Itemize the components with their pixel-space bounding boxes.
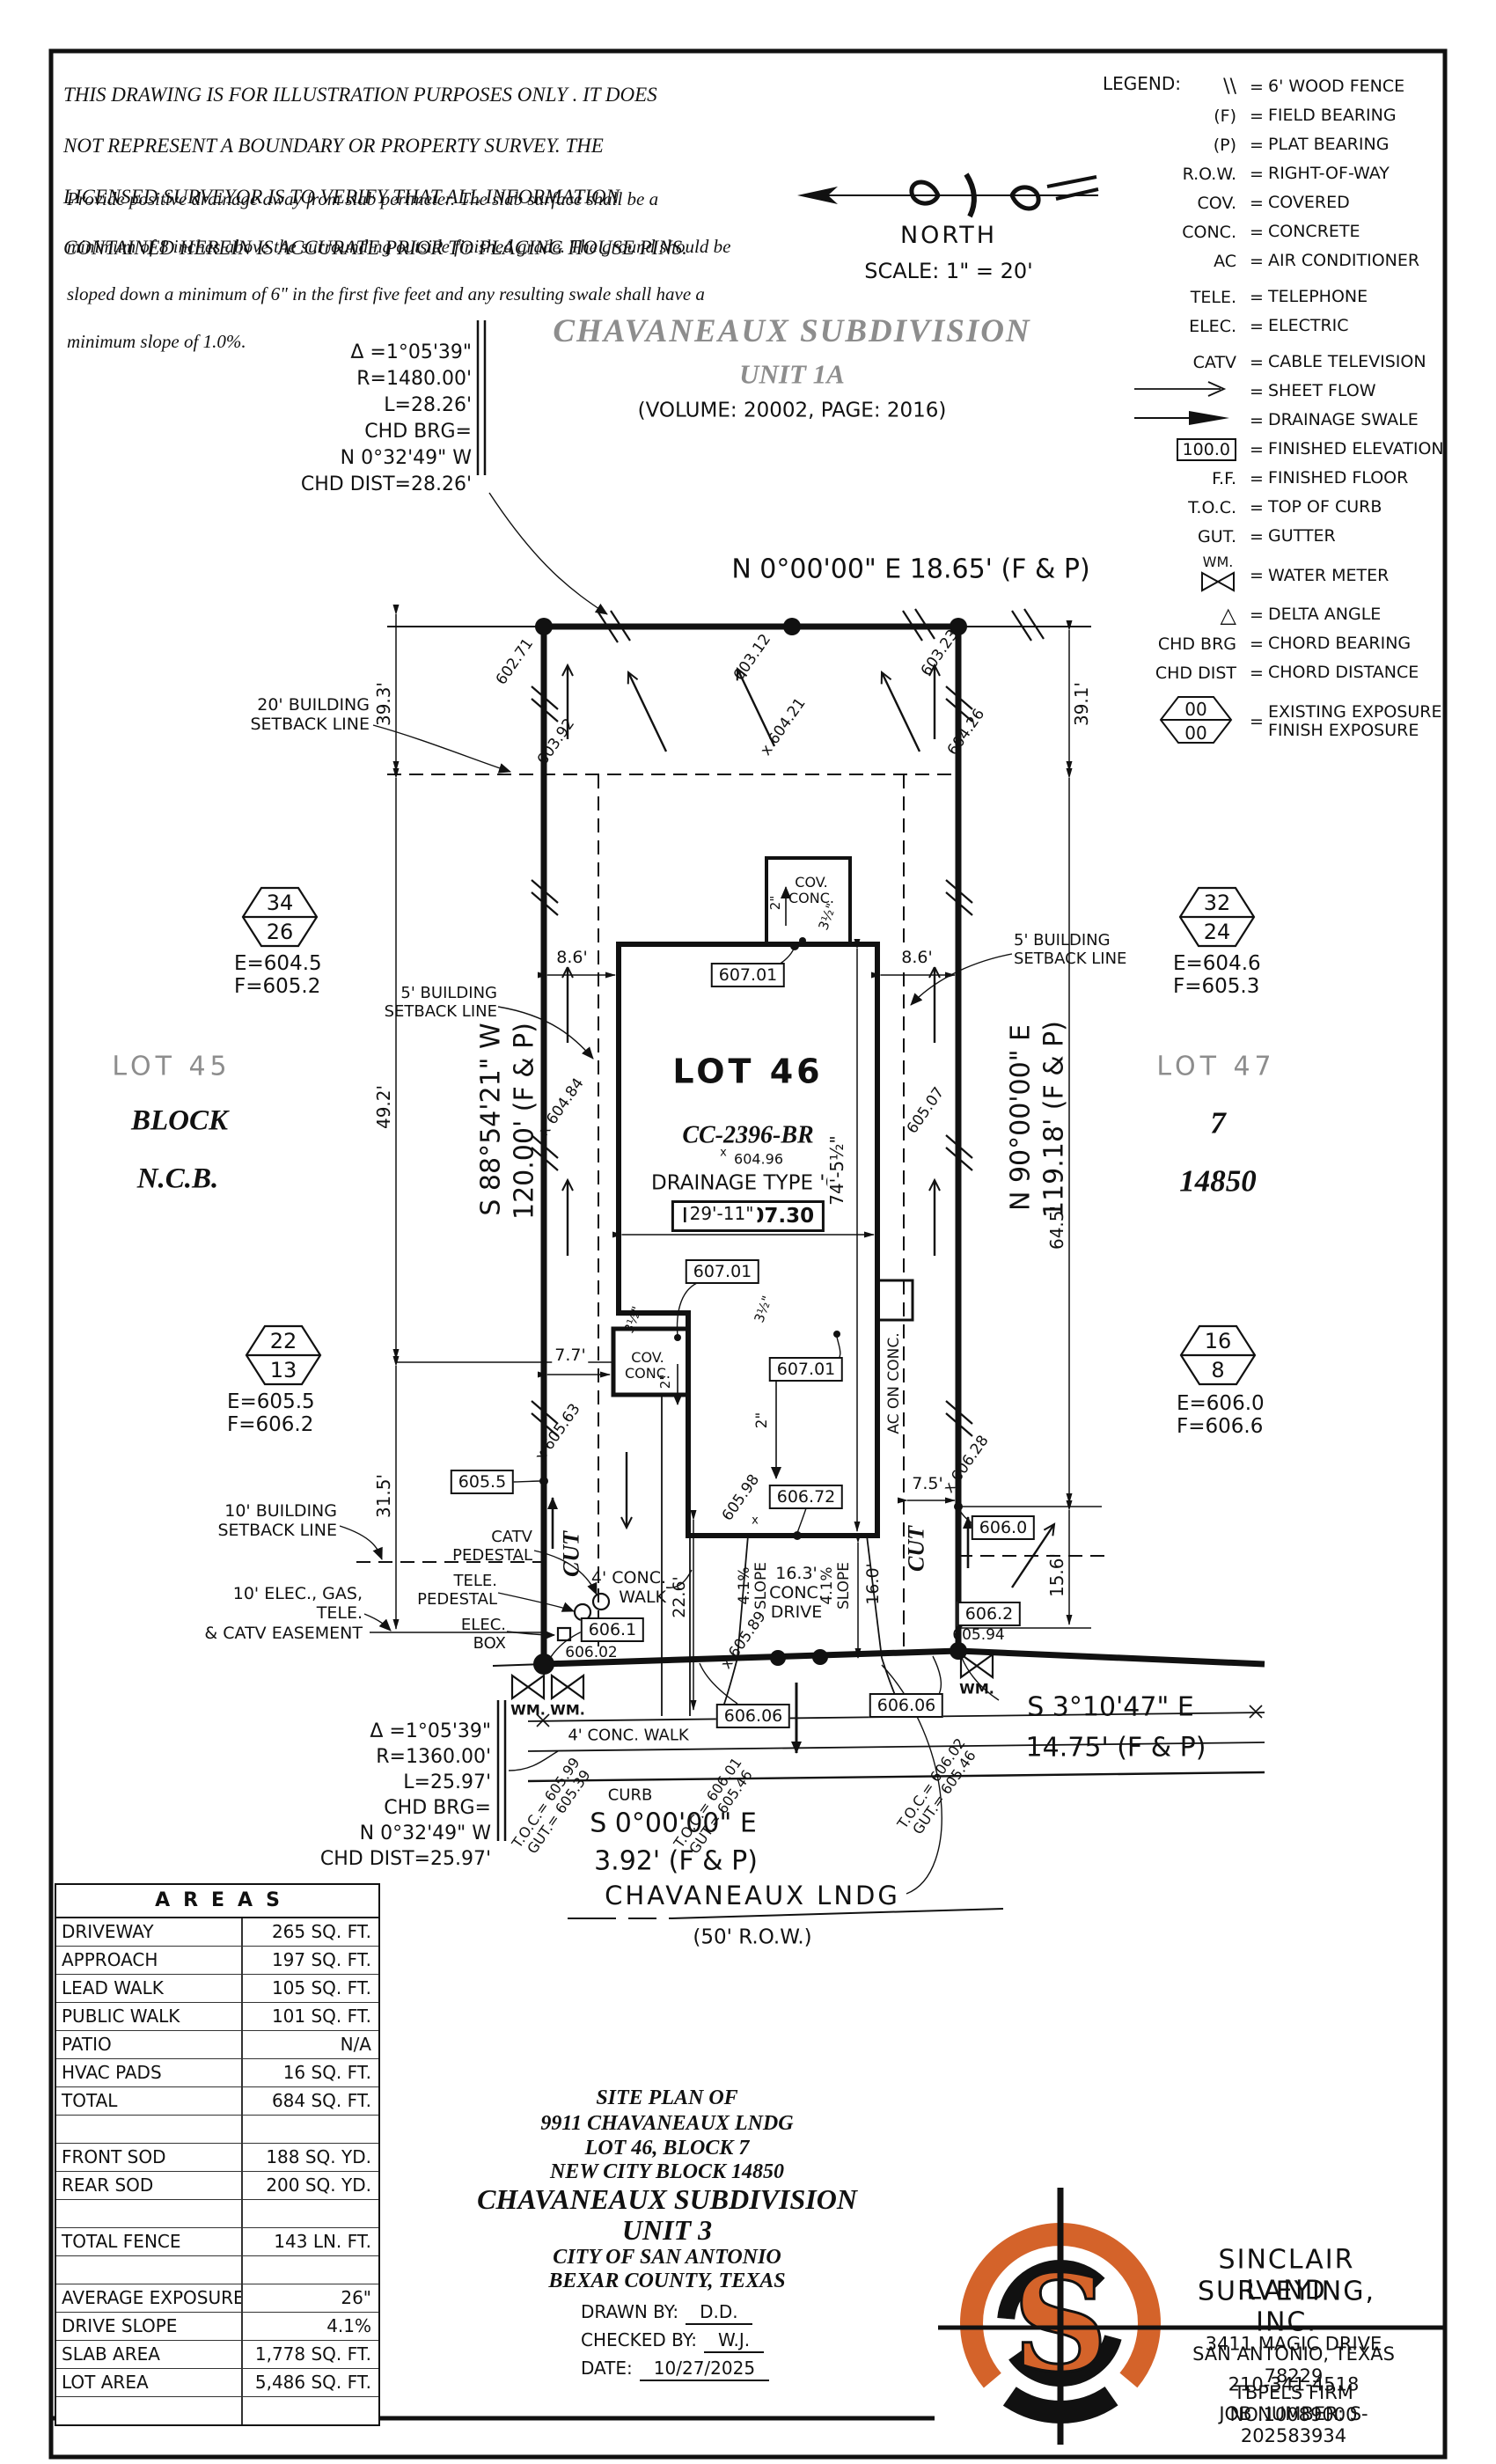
legend-row: T.O.C.=TOP OF CURB — [1103, 493, 1455, 522]
row-value: 143 LN. FT. — [243, 2228, 378, 2255]
row-value — [243, 2256, 378, 2284]
legend-text: PLAT BEARING — [1268, 136, 1389, 154]
catv-pedestal-label: CATV PEDESTAL — [444, 1528, 532, 1565]
legend-text: CABLE TELEVISION — [1268, 353, 1426, 371]
disclaimer-line: Provide positive drainage away from slab… — [67, 187, 730, 211]
elev-box-605-5: 605.5 — [451, 1470, 514, 1494]
water-meter-icon: WM. — [1103, 554, 1245, 598]
legend-row-delta: △=DELTA ANGLE — [1103, 600, 1455, 629]
row-label: DRIVEWAY — [56, 1918, 243, 1946]
titleblock-unit: UNIT 3 — [622, 2214, 712, 2248]
table-row: REAR SOD200 SQ. YD. — [56, 2172, 378, 2200]
curve-line: N 0°32'49" W — [299, 1821, 491, 1846]
hex2-finish: 24 — [1204, 920, 1231, 944]
hex1-existing: 34 — [267, 891, 294, 915]
ncb-label-left: N.C.B. — [137, 1162, 219, 1197]
dim-7-7: 7.7' — [552, 1346, 588, 1365]
row-value: 16 SQ. FT. — [243, 2059, 378, 2086]
curve-line: N 0°32'49" W — [299, 445, 472, 472]
spot-605-94: 605.94 — [952, 1626, 1004, 1644]
row-label — [56, 2116, 243, 2143]
legend-row-exposure: 0000=EXISTING EXPOSURE FINISH EXPOSURE — [1103, 687, 1455, 756]
bearing-west: S 88°54'21" W — [475, 1023, 506, 1215]
scale-label: SCALE: 1" = 20' — [864, 259, 1032, 283]
legend-row: (P)=PLAT BEARING — [1103, 130, 1455, 159]
equals: = — [1245, 527, 1268, 546]
elev-box-606-0: 606.0 — [972, 1515, 1035, 1540]
legend-text: 6' WOOD FENCE — [1268, 77, 1404, 96]
inch-2-rear: 2" — [768, 896, 784, 910]
legend-text: AIR CONDITIONER — [1268, 252, 1419, 270]
row-label: FRONT SOD — [56, 2144, 243, 2171]
row-value — [243, 2116, 378, 2143]
hex4-f: F=606.6 — [1177, 1415, 1263, 1439]
hex3-e: E=605.5 — [227, 1390, 315, 1414]
titleblock-county: BEXAR COUNTY, TEXAS — [548, 2269, 785, 2293]
row-label: DRIVE SLOPE — [56, 2313, 243, 2340]
row-value: 101 SQ. FT. — [243, 2003, 378, 2030]
legend-row: CHD DIST=CHORD DISTANCE — [1103, 658, 1455, 687]
sheet-flow-icon — [1103, 379, 1245, 403]
table-row: DRIVEWAY265 SQ. FT. — [56, 1918, 378, 1947]
curve-line: CHD BRG= — [299, 1795, 491, 1821]
legend-text: ELECTRIC — [1268, 317, 1349, 335]
table-row: PUBLIC WALK101 SQ. FT. — [56, 2003, 378, 2031]
ff-symbol: F.F. — [1103, 469, 1245, 488]
row-value: 684 SQ. FT. — [243, 2087, 378, 2115]
row-label — [56, 2397, 243, 2424]
site-plan-page: S THIS DRAWING IS FOR ILLUSTRATION PURPO… — [0, 0, 1496, 2464]
curve-line: Δ =1°05'39" — [299, 1719, 491, 1744]
table-row: LEAD WALK105 SQ. FT. — [56, 1975, 378, 2003]
elev-box-606-2: 606.2 — [957, 1602, 1021, 1626]
dim-29-11: 29'-11" — [686, 1204, 758, 1225]
equals: = — [1245, 498, 1268, 517]
equals: = — [1245, 288, 1268, 307]
legend-row: TELE.=TELEPHONE — [1103, 282, 1455, 312]
legend-row: COV.=COVERED — [1103, 188, 1455, 217]
bearing-north: N 0°00'00" E 18.65' (F & P) — [731, 554, 1089, 584]
disclaimer-line: minimum of 8 inches above the surroundin… — [67, 235, 730, 259]
table-row: TOTAL FENCE143 LN. FT. — [56, 2228, 378, 2256]
curve-data-south: Δ =1°05'39"R=1360.00'L=25.97'CHD BRG=N 0… — [299, 1693, 491, 1897]
row-label: SLAB AREA — [56, 2341, 243, 2368]
row-label: TOTAL — [56, 2087, 243, 2115]
concrete-symbol: CONC. — [1103, 223, 1245, 242]
cut-label-left: CUT — [559, 1531, 586, 1577]
table-row-blank — [56, 2116, 378, 2144]
legend-row: CONC.=CONCRETE — [1103, 217, 1455, 246]
table-row-blank — [56, 2256, 378, 2284]
legend-row: F.F.=FINISHED FLOOR — [1103, 464, 1455, 493]
equals: = — [1245, 317, 1268, 336]
legend-text: EXISTING EXPOSURE FINISH EXPOSURE — [1268, 703, 1441, 740]
curve-data-north: Δ =1°05'39"R=1480.00'L=28.26'CHD BRG=N 0… — [299, 313, 472, 524]
row-label: PUBLIC WALK — [56, 2003, 243, 2030]
table-row: SLAB AREA1,778 SQ. FT. — [56, 2341, 378, 2369]
covered-symbol: COV. — [1103, 194, 1245, 213]
table-row: HVAC PADS16 SQ. FT. — [56, 2059, 378, 2087]
equals: = — [1245, 106, 1268, 126]
hex4-e: E=606.0 — [1177, 1392, 1265, 1416]
elev-box-606-72: 606.72 — [769, 1485, 843, 1509]
legend-text: SHEET FLOW — [1268, 382, 1376, 400]
chd-dist-symbol: CHD DIST — [1103, 664, 1245, 683]
table-row: TOTAL684 SQ. FT. — [56, 2087, 378, 2116]
curve-line: CHD DIST=25.97' — [299, 1846, 491, 1872]
dim-16-0: 16.0' — [863, 1563, 883, 1605]
drainage-swale-icon — [1103, 408, 1245, 432]
legend-row: CHD BRG=CHORD BEARING — [1103, 629, 1455, 658]
hex4-existing: 16 — [1205, 1329, 1232, 1353]
table-row: LOT AREA5,486 SQ. FT. — [56, 2369, 378, 2397]
equals: = — [1245, 223, 1268, 242]
legend-row-drainage-swale: =DRAINAGE SWALE — [1103, 406, 1455, 435]
equals: = — [1245, 469, 1268, 488]
ac-on-conc-label: AC ON CONC. — [885, 1332, 903, 1434]
elev-box-606-06-left: 606.06 — [716, 1704, 790, 1728]
leader-dots — [539, 937, 963, 1540]
delta-angle-icon: △ — [1103, 603, 1245, 627]
table-row-blank — [56, 2397, 378, 2424]
equals: = — [1245, 136, 1268, 155]
legend-row: (F)=FIELD BEARING — [1103, 101, 1455, 130]
legend-text: CHORD BEARING — [1268, 634, 1411, 653]
street-row-width: (50' R.O.W.) — [693, 1925, 811, 1949]
equals: = — [1245, 77, 1268, 97]
legend-text: COVERED — [1268, 194, 1350, 212]
curve-line: CHD BRG= — [299, 419, 472, 445]
row-value: 4.1% — [243, 2313, 378, 2340]
titleblock-line: NEW CITY BLOCK 14850 — [550, 2160, 784, 2184]
areas-title: AREAS — [56, 1885, 378, 1918]
dim-39-3: 39.3' — [374, 682, 395, 726]
titleblock-subdivision: CHAVANEAUX SUBDIVISION — [477, 2183, 857, 2217]
elec-box-label: ELEC. BOX — [418, 1616, 506, 1653]
hex2-f: F=605.3 — [1173, 975, 1259, 999]
dim-64-5: 64.5' — [1047, 1206, 1068, 1250]
drive-label: 16.3' CONC. DRIVE — [769, 1564, 824, 1622]
legend-text: CHORD DISTANCE — [1268, 664, 1419, 682]
bearing-southeast-distance: 14.75' (F & P) — [1026, 1732, 1206, 1763]
setback-20-label: 20' BUILDING SETBACK LINE — [211, 695, 370, 735]
equals: = — [1245, 440, 1268, 459]
elevation-box: 100.0 — [1177, 438, 1236, 461]
legend: LEGEND: \\=6' WOOD FENCE (F)=FIELD BEARI… — [1103, 72, 1455, 756]
elev-box-607-01-rear: 607.01 — [711, 963, 785, 987]
gutter-symbol: GUT. — [1103, 527, 1245, 546]
plat-bearing-symbol: (P) — [1103, 136, 1245, 155]
row-value: 1,778 SQ. FT. — [243, 2341, 378, 2368]
row-value: 200 SQ. YD. — [243, 2172, 378, 2199]
row-label: LOT AREA — [56, 2369, 243, 2396]
north-arrow-icon — [797, 174, 1098, 216]
curve-line: CHD DIST=28.26' — [299, 472, 472, 498]
row-value — [243, 2397, 378, 2424]
spot-606-02: 606.02 — [565, 1644, 617, 1661]
wm-label-2: WM. — [550, 1703, 585, 1720]
row-value: N/A — [243, 2031, 378, 2058]
spot-604-96: 604.96 — [734, 1152, 783, 1169]
hex4-finish: 8 — [1211, 1358, 1224, 1382]
hex1-f: F=605.2 — [234, 975, 320, 999]
elev-box-607-01-mid: 607.01 — [686, 1259, 759, 1284]
svg-text:00: 00 — [1184, 722, 1206, 744]
lot-45-label: LOT 45 — [112, 1051, 231, 1082]
drainage-type: DRAINAGE TYPE 'C' — [651, 1171, 845, 1195]
table-row-blank — [56, 2200, 378, 2228]
checked-by-row: CHECKED BY:W.J. — [581, 2330, 764, 2353]
wm-label-3: WM. — [959, 1682, 994, 1698]
drawn-by-value: D.D. — [686, 2302, 752, 2325]
drawn-by-label: DRAWN BY: — [581, 2301, 678, 2322]
curve-line: L=25.97' — [299, 1770, 491, 1795]
table-row: FRONT SOD188 SQ. YD. — [56, 2144, 378, 2172]
row-label: APPROACH — [56, 1947, 243, 1974]
elev-box-607-01-front: 607.01 — [769, 1357, 843, 1382]
plan-number: CC-2396-BR — [682, 1120, 813, 1149]
legend-text: FIELD BEARING — [1268, 106, 1397, 125]
bearing-south: S 0°00'00" E — [590, 1808, 757, 1838]
curve-line: Δ =1°05'39" — [299, 340, 472, 366]
cut-label-right: CUT — [904, 1526, 931, 1572]
lot-46-label: LOT 46 — [672, 1052, 823, 1092]
legend-text: DELTA ANGLE — [1268, 605, 1381, 624]
legend-row: CATV=CABLE TELEVISION — [1103, 348, 1455, 377]
wm-label-1: WM. — [510, 1703, 546, 1720]
row-value: 105 SQ. FT. — [243, 1975, 378, 2002]
equals: = — [1245, 634, 1268, 654]
equals: = — [1245, 353, 1268, 372]
adjacent-subdivision-unit: UNIT 1A — [739, 359, 845, 392]
dim-8-6-left: 8.6' — [553, 948, 590, 967]
lot-47-label: LOT 47 — [1156, 1051, 1275, 1082]
equals: = — [1245, 605, 1268, 625]
date-label: DATE: — [581, 2358, 633, 2379]
row-value: 26" — [243, 2284, 378, 2312]
chd-brg-symbol: CHD BRG — [1103, 634, 1245, 654]
easement-label: 10' ELEC., GAS, TELE. & CATV EASEMENT — [190, 1584, 363, 1643]
hex2-existing: 32 — [1204, 891, 1231, 915]
bearing-south-distance: 3.92' (F & P) — [594, 1845, 758, 1876]
titleblock-city: CITY OF SAN ANTONIO — [553, 2245, 781, 2270]
row-value: 188 SQ. YD. — [243, 2144, 378, 2171]
table-row: APPROACH197 SQ. FT. — [56, 1947, 378, 1975]
legend-text: FINISHED FLOOR — [1268, 469, 1408, 488]
setback-5-left-label: 5' BUILDING SETBACK LINE — [376, 984, 497, 1021]
legend-text: CONCRETE — [1268, 223, 1360, 241]
inch-2-porch: 2" — [658, 1375, 674, 1389]
hex1-finish: 26 — [267, 920, 294, 944]
adjacent-subdivision-title: CHAVANEAUX SUBDIVISION — [553, 312, 1030, 351]
row-label: LEAD WALK — [56, 1975, 243, 2002]
ac-symbol: AC — [1103, 252, 1245, 271]
legend-row: R.O.W.=RIGHT-OF-WAY — [1103, 159, 1455, 188]
adjacent-subdivision-volume: (VOLUME: 20002, PAGE: 2016) — [638, 399, 947, 422]
legend-text: GUTTER — [1268, 527, 1336, 546]
row-label — [56, 2256, 243, 2284]
disclaimer-line: NOT REPRESENT A BOUNDARY OR PROPERTY SUR… — [63, 133, 687, 158]
equals: = — [1245, 566, 1268, 585]
block-label-left: BLOCK — [131, 1104, 228, 1139]
wm-label: WM. — [1199, 554, 1236, 570]
row-label: REAR SOD — [56, 2172, 243, 2199]
row-value: 265 SQ. FT. — [243, 1918, 378, 1946]
legend-text: FINISHED ELEVATION — [1268, 440, 1444, 458]
date-row: DATE:10/27/2025 — [581, 2358, 769, 2381]
street-name: CHAVANEAUX LNDG — [605, 1881, 900, 1910]
equals: = — [1245, 411, 1268, 430]
row-label: TOTAL FENCE — [56, 2228, 243, 2255]
legend-title: LEGEND: — [1103, 74, 1181, 95]
legend-row: ELEC.=ELECTRIC — [1103, 312, 1455, 341]
table-row: AVERAGE EXPOSURE26" — [56, 2284, 378, 2313]
drawn-by-row: DRAWN BY:D.D. — [581, 2302, 752, 2325]
row-value: 197 SQ. FT. — [243, 1947, 378, 1974]
checked-by-value: W.J. — [704, 2330, 764, 2353]
bearing-east: N 90°00'00" E — [1005, 1024, 1036, 1211]
telephone-symbol: TELE. — [1103, 288, 1245, 307]
legend-text: RIGHT-OF-WAY — [1268, 165, 1390, 183]
dim-22-6: 22.6' — [670, 1576, 689, 1618]
curve-line: R=1480.00' — [299, 366, 472, 392]
equals: = — [1245, 712, 1268, 731]
equals: = — [1245, 194, 1268, 213]
public-walk-label: 4' CONC. WALK — [563, 1726, 693, 1744]
dim-49-2: 49.2' — [374, 1085, 395, 1129]
bearing-west-distance: 120.00' (F & P) — [509, 1023, 539, 1220]
hex3-f: F=606.2 — [227, 1413, 313, 1437]
hex1-e: E=604.5 — [234, 952, 322, 976]
house-outline — [613, 858, 913, 1536]
titleblock-line: LOT 46, BLOCK 7 — [585, 2136, 750, 2160]
surveyor-name-2: SURVEYING, INC. — [1182, 2277, 1391, 2339]
field-bearing-symbol: (F) — [1103, 106, 1245, 126]
svg-text:00: 00 — [1184, 699, 1206, 720]
lead-walk-label: 4' CONC. WALK — [578, 1568, 666, 1608]
date-value: 10/27/2025 — [640, 2358, 769, 2381]
row-value — [243, 2200, 378, 2227]
row-label: HVAC PADS — [56, 2059, 243, 2086]
block-number-right: 7 — [1210, 1104, 1226, 1140]
tele-pedestal-label: TELE. PEDESTAL — [400, 1572, 497, 1609]
inch-2-front: 2" — [753, 1412, 771, 1429]
wood-fence-icon: \\ — [1173, 76, 1245, 98]
table-row: PATION/A — [56, 2031, 378, 2059]
table-row: DRIVE SLOPE4.1% — [56, 2313, 378, 2341]
equals: = — [1245, 252, 1268, 271]
elev-box-606-06-right: 606.06 — [869, 1693, 943, 1718]
bearing-east-distance: 119.18' (F & P) — [1038, 1021, 1069, 1218]
legend-row: GUT.=GUTTER — [1103, 522, 1455, 551]
north-label: NORTH — [900, 222, 997, 250]
curb-label: CURB — [608, 1786, 653, 1804]
titleblock-line: SITE PLAN OF — [596, 2086, 737, 2110]
bearing-southeast: S 3°10'47" E — [1027, 1691, 1194, 1722]
toc-symbol: T.O.C. — [1103, 498, 1245, 517]
x-mark: x — [720, 1146, 727, 1159]
legend-row: AC=AIR CONDITIONER — [1103, 246, 1455, 275]
dim-15-6: 15.6' — [1047, 1553, 1068, 1597]
slope-left-label: 4.1% SLOPE — [737, 1562, 770, 1610]
row-label — [56, 2200, 243, 2227]
legend-row-sheet-flow: =SHEET FLOW — [1103, 377, 1455, 406]
legend-text: WATER METER — [1268, 567, 1389, 585]
equals: = — [1245, 165, 1268, 184]
ncb-number-right: 14850 — [1179, 1162, 1257, 1199]
equals: = — [1245, 382, 1268, 401]
catv-symbol: CATV — [1103, 353, 1245, 372]
row-symbol: R.O.W. — [1103, 165, 1245, 184]
disclaimer-line: sloped down a minimum of 6" in the first… — [67, 282, 730, 306]
row-value: 5,486 SQ. FT. — [243, 2369, 378, 2396]
setback-10-label: 10' BUILDING SETBACK LINE — [201, 1501, 337, 1541]
surveyor-job-number: JOB NUMBER: S-202583934 — [1192, 2403, 1395, 2447]
dim-39-1: 39.1' — [1072, 682, 1093, 726]
slope-right-label: 4.1% SLOPE — [819, 1562, 853, 1610]
x-mark-605-98: x — [752, 1514, 759, 1527]
disclaimer-line: THIS DRAWING IS FOR ILLUSTRATION PURPOSE… — [63, 82, 687, 107]
exposure-hexagon-icon: 0000 — [1103, 692, 1245, 752]
hex3-finish: 13 — [270, 1358, 297, 1382]
dim-31-5: 31.5' — [374, 1474, 395, 1518]
curve-line: R=1360.00' — [299, 1744, 491, 1770]
row-label: PATIO — [56, 2031, 243, 2058]
titleblock-line: 9911 CHAVANEAUX LNDG — [540, 2111, 793, 2136]
legend-row-water-meter: WM.=WATER METER — [1103, 551, 1455, 600]
areas-table: AREAS DRIVEWAY265 SQ. FT. APPROACH197 SQ… — [55, 1883, 380, 2426]
legend-text: TELEPHONE — [1268, 288, 1368, 306]
legend-row-finished-elev: 100.0=FINISHED ELEVATION — [1103, 435, 1455, 464]
legend-text: DRAINAGE SWALE — [1268, 411, 1419, 429]
hex3-existing: 22 — [270, 1329, 297, 1353]
dim-8-6-right: 8.6' — [898, 948, 935, 967]
setback-5-right-label: 5' BUILDING SETBACK LINE — [1014, 931, 1155, 968]
dim-74-5: 74'-5½" — [827, 1135, 848, 1205]
row-label: AVERAGE EXPOSURE — [56, 2284, 243, 2312]
elev-box-606-1: 606.1 — [581, 1617, 644, 1642]
finished-elevation-symbol: 100.0 — [1103, 440, 1245, 459]
dim-7-5: 7.5' — [909, 1474, 945, 1493]
electric-symbol: ELEC. — [1103, 317, 1245, 336]
hex2-e: E=604.6 — [1173, 952, 1261, 976]
legend-text: TOP OF CURB — [1268, 498, 1382, 517]
checked-by-label: CHECKED BY: — [581, 2329, 697, 2350]
equals: = — [1245, 664, 1268, 683]
curve-line: L=28.26' — [299, 392, 472, 419]
